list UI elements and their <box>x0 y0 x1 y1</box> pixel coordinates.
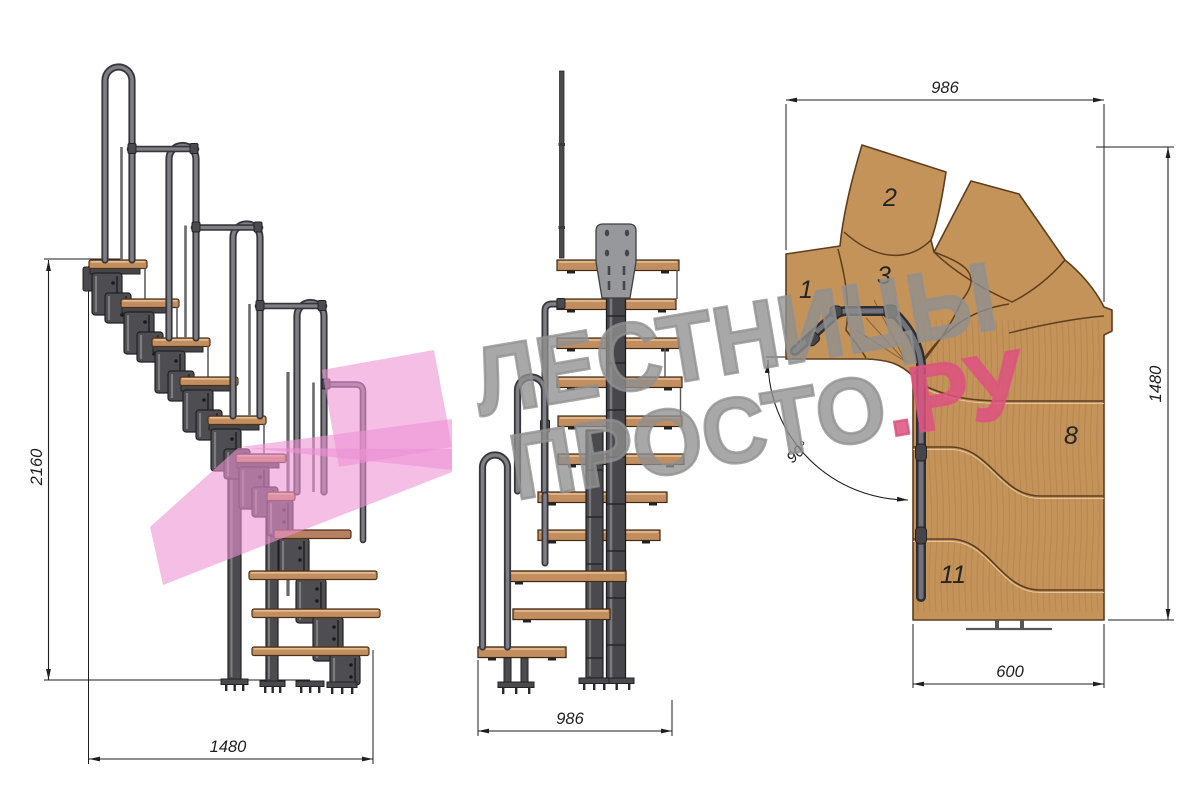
svg-text:2: 2 <box>882 184 897 212</box>
svg-text:11: 11 <box>940 561 966 589</box>
svg-text:600: 600 <box>996 663 1024 681</box>
svg-text:986: 986 <box>556 710 584 728</box>
svg-text:1480: 1480 <box>210 738 248 756</box>
svg-text:1480: 1480 <box>1147 365 1165 403</box>
svg-text:8: 8 <box>1064 422 1078 450</box>
svg-text:986: 986 <box>931 79 959 97</box>
svg-text:2160: 2160 <box>28 448 46 487</box>
